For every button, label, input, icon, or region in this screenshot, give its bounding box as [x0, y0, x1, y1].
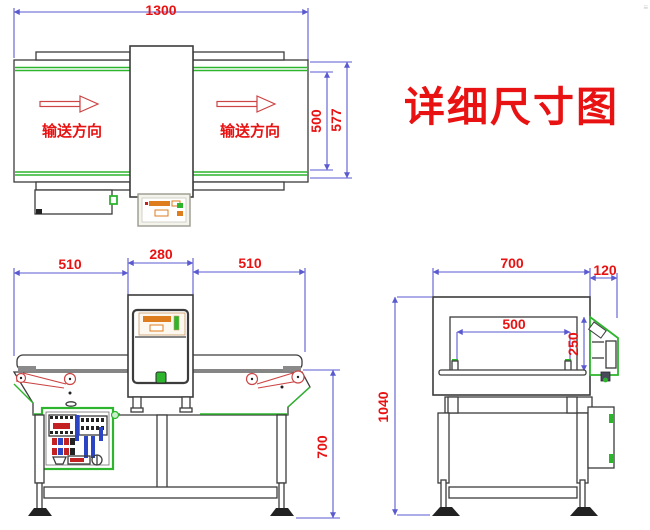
- belt-guide-bottom-right: [193, 182, 284, 190]
- breaker-red-label: [53, 423, 70, 429]
- dim-total-height: 1040: [375, 297, 432, 515]
- dim-label-1040: 1040: [375, 391, 391, 422]
- belt-guide-bottom-left: [36, 182, 130, 190]
- top-view: 1300 输送方向 输送方向: [14, 2, 352, 226]
- foot-left: [28, 508, 52, 516]
- belt-end-cap-right: [283, 366, 301, 371]
- side-control-panel: [589, 317, 618, 382]
- foot-right: [270, 508, 294, 516]
- display-bar: [149, 201, 170, 206]
- foot-left-side: [432, 507, 460, 516]
- head-display-panel: [139, 313, 185, 335]
- corner-artifact: ≡: [643, 4, 648, 12]
- side-view: 700 120 500 250: [375, 255, 618, 516]
- belt-end-cap-left: [18, 366, 36, 371]
- drive-motor-box: [35, 190, 117, 214]
- dim-label-500-top: 500: [308, 109, 324, 133]
- belt-guide-top-left: [36, 52, 130, 60]
- side-motor-box: [588, 407, 614, 468]
- dim-label-280: 280: [149, 246, 173, 262]
- head-green-button: [156, 372, 166, 383]
- detector-head-plan: [130, 46, 193, 197]
- cable-gland: [112, 412, 119, 419]
- dim-label-510-right: 510: [238, 255, 262, 271]
- belt-side: [439, 370, 586, 375]
- dim-label-500-side: 500: [502, 316, 526, 332]
- foot-right-side: [570, 507, 598, 516]
- head-brace-left: [133, 397, 141, 409]
- dim-panel-depth: 120: [590, 262, 617, 318]
- display-green-lamp: [174, 316, 179, 330]
- head-brace-right: [182, 397, 190, 409]
- frame-side: [432, 413, 598, 516]
- dim-body-width: 700: [433, 255, 590, 297]
- dim-label-250: 250: [565, 332, 581, 356]
- indicator-orange: [177, 211, 183, 216]
- page-title: 详细尺寸图: [404, 80, 640, 134]
- dim-left-conveyor: 510: [14, 256, 128, 356]
- flow-label-left: 输送方向: [42, 122, 102, 140]
- electrical-control-box: [37, 408, 119, 469]
- relay-blue: [75, 415, 79, 441]
- flow-label-right: 输送方向: [220, 122, 280, 140]
- indicator-green: [177, 203, 183, 208]
- dim-label-700-front: 700: [314, 435, 330, 459]
- dimension-drawing-page: 1300 输送方向 输送方向: [0, 0, 650, 530]
- dim-detector-width: 280: [128, 246, 193, 295]
- belt-guide-top-right: [193, 52, 284, 60]
- dim-right-conveyor: 510: [193, 255, 305, 352]
- dim-label-120: 120: [593, 262, 617, 278]
- dim-label-1300: 1300: [145, 2, 176, 18]
- control-panel-plan: [138, 194, 190, 226]
- dim-label-577: 577: [328, 108, 344, 132]
- dim-label-510-left: 510: [58, 256, 82, 272]
- front-view: 510 280 510: [14, 246, 340, 518]
- dim-label-700-side: 700: [500, 255, 524, 271]
